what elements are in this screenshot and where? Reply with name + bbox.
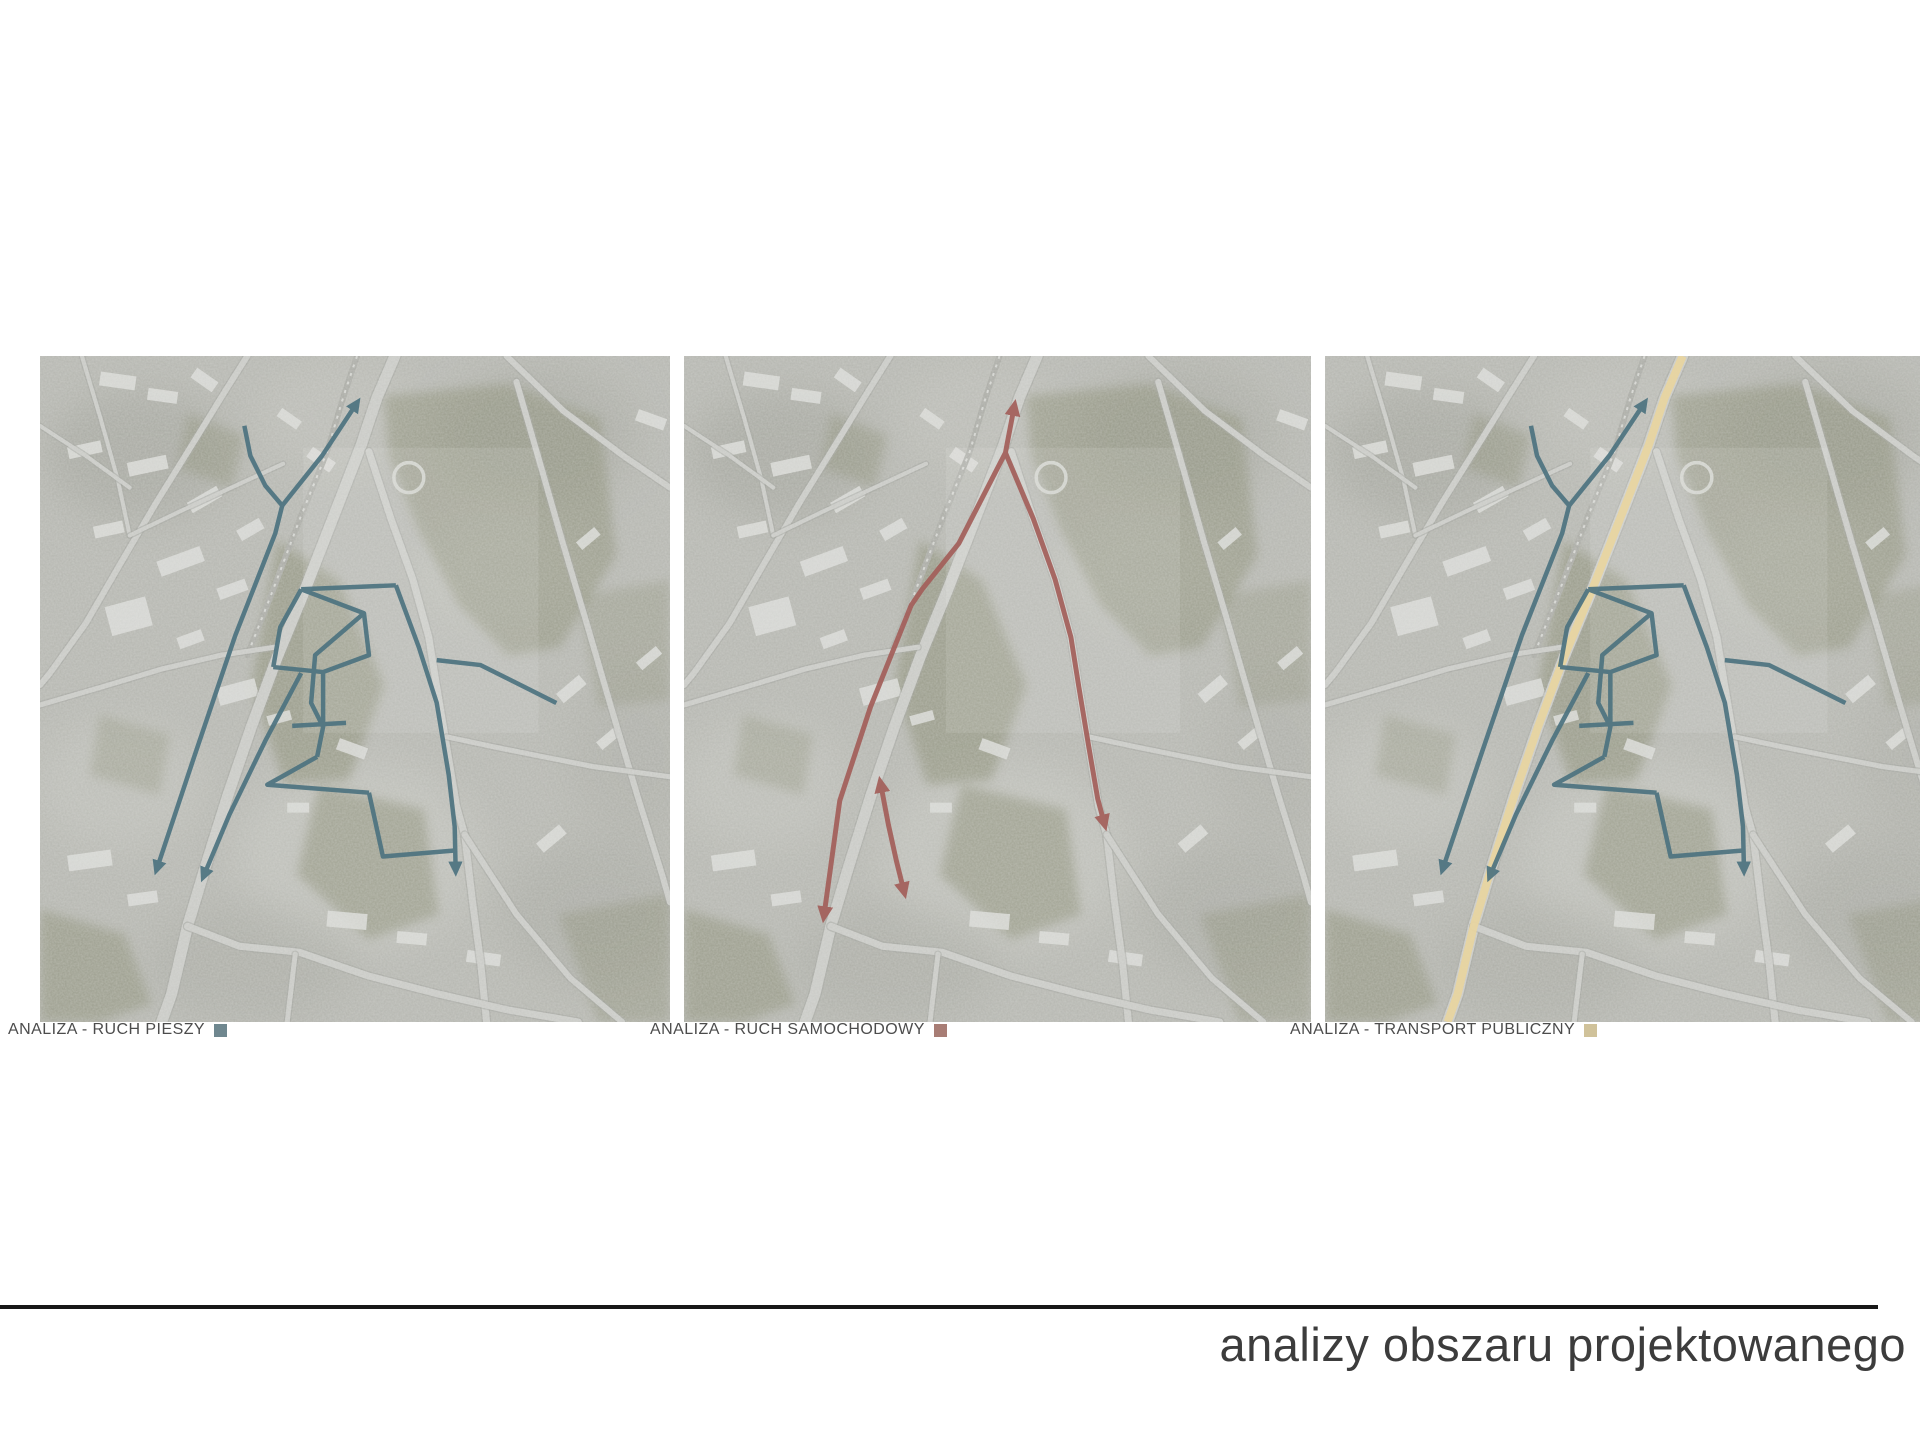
caption-pedestrian-label: ANALIZA - RUCH PIESZY: [8, 1021, 205, 1039]
aerial-map-public-transport: [1325, 356, 1920, 1022]
caption-car-label: ANALIZA - RUCH SAMOCHODOWY: [650, 1021, 925, 1039]
page-title: analizy obszaru projektowanego: [0, 1318, 1906, 1372]
legend-swatch-pedestrian: [214, 1024, 227, 1037]
map-panel-public-transport: [1325, 356, 1920, 1022]
map-panel-pedestrian: [40, 356, 670, 1022]
caption-public-transport: ANALIZA - TRANSPORT PUBLICZNY: [1290, 1019, 1597, 1041]
aerial-map-pedestrian: [40, 356, 670, 1022]
caption-pedestrian: ANALIZA - RUCH PIESZY: [8, 1019, 227, 1041]
aerial-map-car: [684, 356, 1311, 1022]
caption-car: ANALIZA - RUCH SAMOCHODOWY: [650, 1019, 947, 1041]
map-panel-car: [684, 356, 1311, 1022]
legend-swatch-car: [934, 1024, 947, 1037]
divider-line: [0, 1305, 1878, 1309]
caption-public-transport-label: ANALIZA - TRANSPORT PUBLICZNY: [1290, 1021, 1575, 1039]
legend-swatch-public-transport: [1584, 1024, 1597, 1037]
